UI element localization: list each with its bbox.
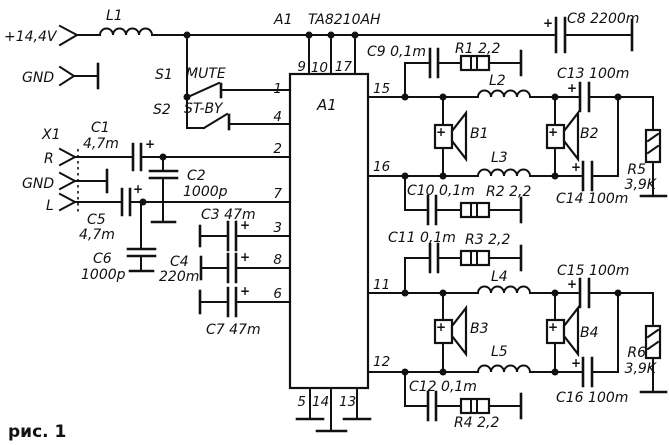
- capacitor-c15: [580, 279, 589, 307]
- pin-label-16: 16: [373, 159, 390, 175]
- pin-label-9: 9: [297, 59, 306, 75]
- s1-ref: S1: [155, 67, 173, 83]
- speaker-b3-cone: [452, 308, 466, 354]
- l4-label: L4: [491, 269, 508, 285]
- capacitor-c16: [583, 358, 592, 386]
- x1-label: X1: [41, 127, 61, 143]
- r6-val: 3,9K: [625, 361, 658, 377]
- b2-label: B2: [580, 126, 599, 142]
- resistor-r2: [461, 203, 489, 217]
- input-r-icon: [60, 149, 75, 165]
- capacitor-c9: [430, 49, 438, 77]
- l3-label: L3: [491, 150, 508, 166]
- switch-s1-arm: [190, 83, 219, 96]
- input-gnd-icon: [60, 173, 75, 189]
- input-l-label: L: [46, 198, 54, 214]
- pin-label-4: 4: [273, 109, 282, 125]
- gnd-top-label: GND: [22, 70, 54, 86]
- capacitor-c14: [583, 162, 592, 190]
- c14-label: C14 100m: [556, 191, 628, 207]
- capacitor-c3: [228, 222, 236, 250]
- capacitor-c11: [430, 244, 438, 272]
- c2-val: 1000p: [183, 184, 228, 200]
- l2-label: L2: [489, 73, 506, 89]
- title-ref: A1: [273, 12, 292, 28]
- b3-label: B3: [470, 321, 489, 337]
- pin-label-3: 3: [273, 220, 282, 236]
- input-r-label: R: [44, 151, 54, 167]
- pin-label-15: 15: [373, 81, 390, 97]
- b4-plus: +: [548, 320, 558, 334]
- capacitor-c8: [556, 18, 565, 52]
- figure-caption: рис. 1: [8, 422, 66, 442]
- c14-plus: +: [571, 160, 581, 174]
- c9-label: C9 0,1m: [367, 44, 426, 60]
- schematic-page: +14,4V L1 GND C8 2200m + A1 TA8210AH S1 …: [0, 0, 669, 445]
- capacitor-c13: [580, 83, 589, 111]
- c4-ref: C4: [170, 254, 189, 270]
- ic-body: [290, 74, 368, 388]
- s1-name: MUTE: [186, 66, 226, 82]
- r1-label: R1 2,2: [455, 41, 500, 57]
- pin-label-14: 14: [312, 394, 329, 410]
- b2-plus: +: [548, 125, 558, 139]
- r5-ref: R5: [627, 162, 646, 178]
- ic-a1: [290, 35, 370, 431]
- gnd-connector-icon: [60, 67, 74, 85]
- c5-val: 4,7m: [79, 227, 115, 243]
- c10-label: C10 0,1m: [407, 183, 475, 199]
- schematic-canvas: +14,4V L1 GND C8 2200m + A1 TA8210AH S1 …: [0, 0, 669, 445]
- capacitor-c7: [228, 288, 236, 316]
- r3-label: R3 2,2: [465, 232, 510, 248]
- c7-label: C7 47m: [206, 322, 261, 338]
- s2-name: ST-BY: [184, 101, 224, 117]
- capacitor-c10: [428, 196, 436, 224]
- supply-label: +14,4V: [4, 29, 58, 45]
- inductor-l4: [478, 287, 530, 294]
- l5-label: L5: [491, 344, 508, 360]
- c6-ref: C6: [93, 251, 112, 267]
- c13-label: C13 100m: [557, 66, 629, 82]
- c7-plus: +: [240, 284, 250, 298]
- c8-plus: +: [543, 16, 553, 30]
- c3-plus: +: [240, 218, 250, 232]
- resistor-r1: [461, 56, 489, 70]
- title-part: TA8210AH: [308, 12, 381, 28]
- inductor-l5: [478, 366, 530, 373]
- c8-label: C8 2200m: [567, 11, 639, 27]
- c13-plus: +: [567, 81, 577, 95]
- r4-label: R4 2,2: [454, 415, 499, 431]
- capacitor-c4: [228, 254, 236, 282]
- inductor-l3: [478, 170, 530, 177]
- b4-label: B4: [580, 325, 599, 341]
- c16-plus: +: [571, 356, 581, 370]
- pin-label-8: 8: [273, 252, 282, 268]
- pin-label-7: 7: [273, 186, 282, 202]
- c1-val: 4,7m: [83, 136, 119, 152]
- input-l-icon: [60, 194, 75, 210]
- c1-ref: C1: [91, 120, 110, 136]
- pin-label-1: 1: [273, 81, 282, 97]
- inductor-l2: [478, 91, 530, 97]
- pin-label-2: 2: [273, 141, 282, 157]
- r2-label: R2 2,2: [486, 184, 531, 200]
- speaker-b1-cone: [452, 113, 466, 159]
- b1-plus: +: [436, 125, 446, 139]
- pin-label-10: 10: [311, 60, 328, 76]
- c6-val: 1000p: [81, 267, 126, 283]
- ic-inner-label: A1: [316, 96, 337, 114]
- pin-label-17: 17: [335, 59, 353, 75]
- c5-ref: C5: [87, 212, 106, 228]
- ground-bar: [297, 419, 370, 431]
- c1-plus: +: [145, 137, 155, 151]
- resistor-r3: [461, 251, 489, 265]
- pin-label-11: 11: [373, 277, 390, 293]
- s2-ref: S2: [153, 102, 171, 118]
- c15-plus: +: [567, 277, 577, 291]
- c16-label: C16 100m: [556, 390, 628, 406]
- speaker-b4-cone: [564, 308, 578, 354]
- r5-val: 3,9K: [625, 177, 658, 193]
- c5-plus: +: [133, 182, 143, 196]
- pin-label-12: 12: [373, 354, 390, 370]
- b1-label: B1: [470, 126, 489, 142]
- capacitor-c2: [150, 171, 177, 178]
- c2-ref: C2: [187, 168, 206, 184]
- c12-label: C12 0,1m: [409, 379, 477, 395]
- capacitor-c1: [133, 144, 141, 170]
- capacitor-c5: [122, 189, 130, 215]
- pin-label-6: 6: [273, 286, 282, 302]
- c4-val: 220m: [159, 269, 199, 285]
- pin-label-13: 13: [339, 394, 356, 410]
- speaker-b2-cone: [564, 113, 578, 159]
- c11-label: C11 0,1m: [388, 230, 456, 246]
- b3-plus: +: [436, 320, 446, 334]
- l1-label: L1: [106, 8, 123, 24]
- resistor-r4: [461, 399, 489, 413]
- capacitor-c6: [128, 249, 155, 256]
- input-gnd-label: GND: [22, 176, 54, 192]
- capacitor-c12: [428, 392, 436, 420]
- supply-connector-icon: [60, 26, 77, 45]
- r6-ref: R6: [627, 345, 646, 361]
- inductor-l1: [100, 29, 152, 36]
- c4-plus: +: [240, 250, 250, 264]
- pin-label-5: 5: [297, 394, 306, 410]
